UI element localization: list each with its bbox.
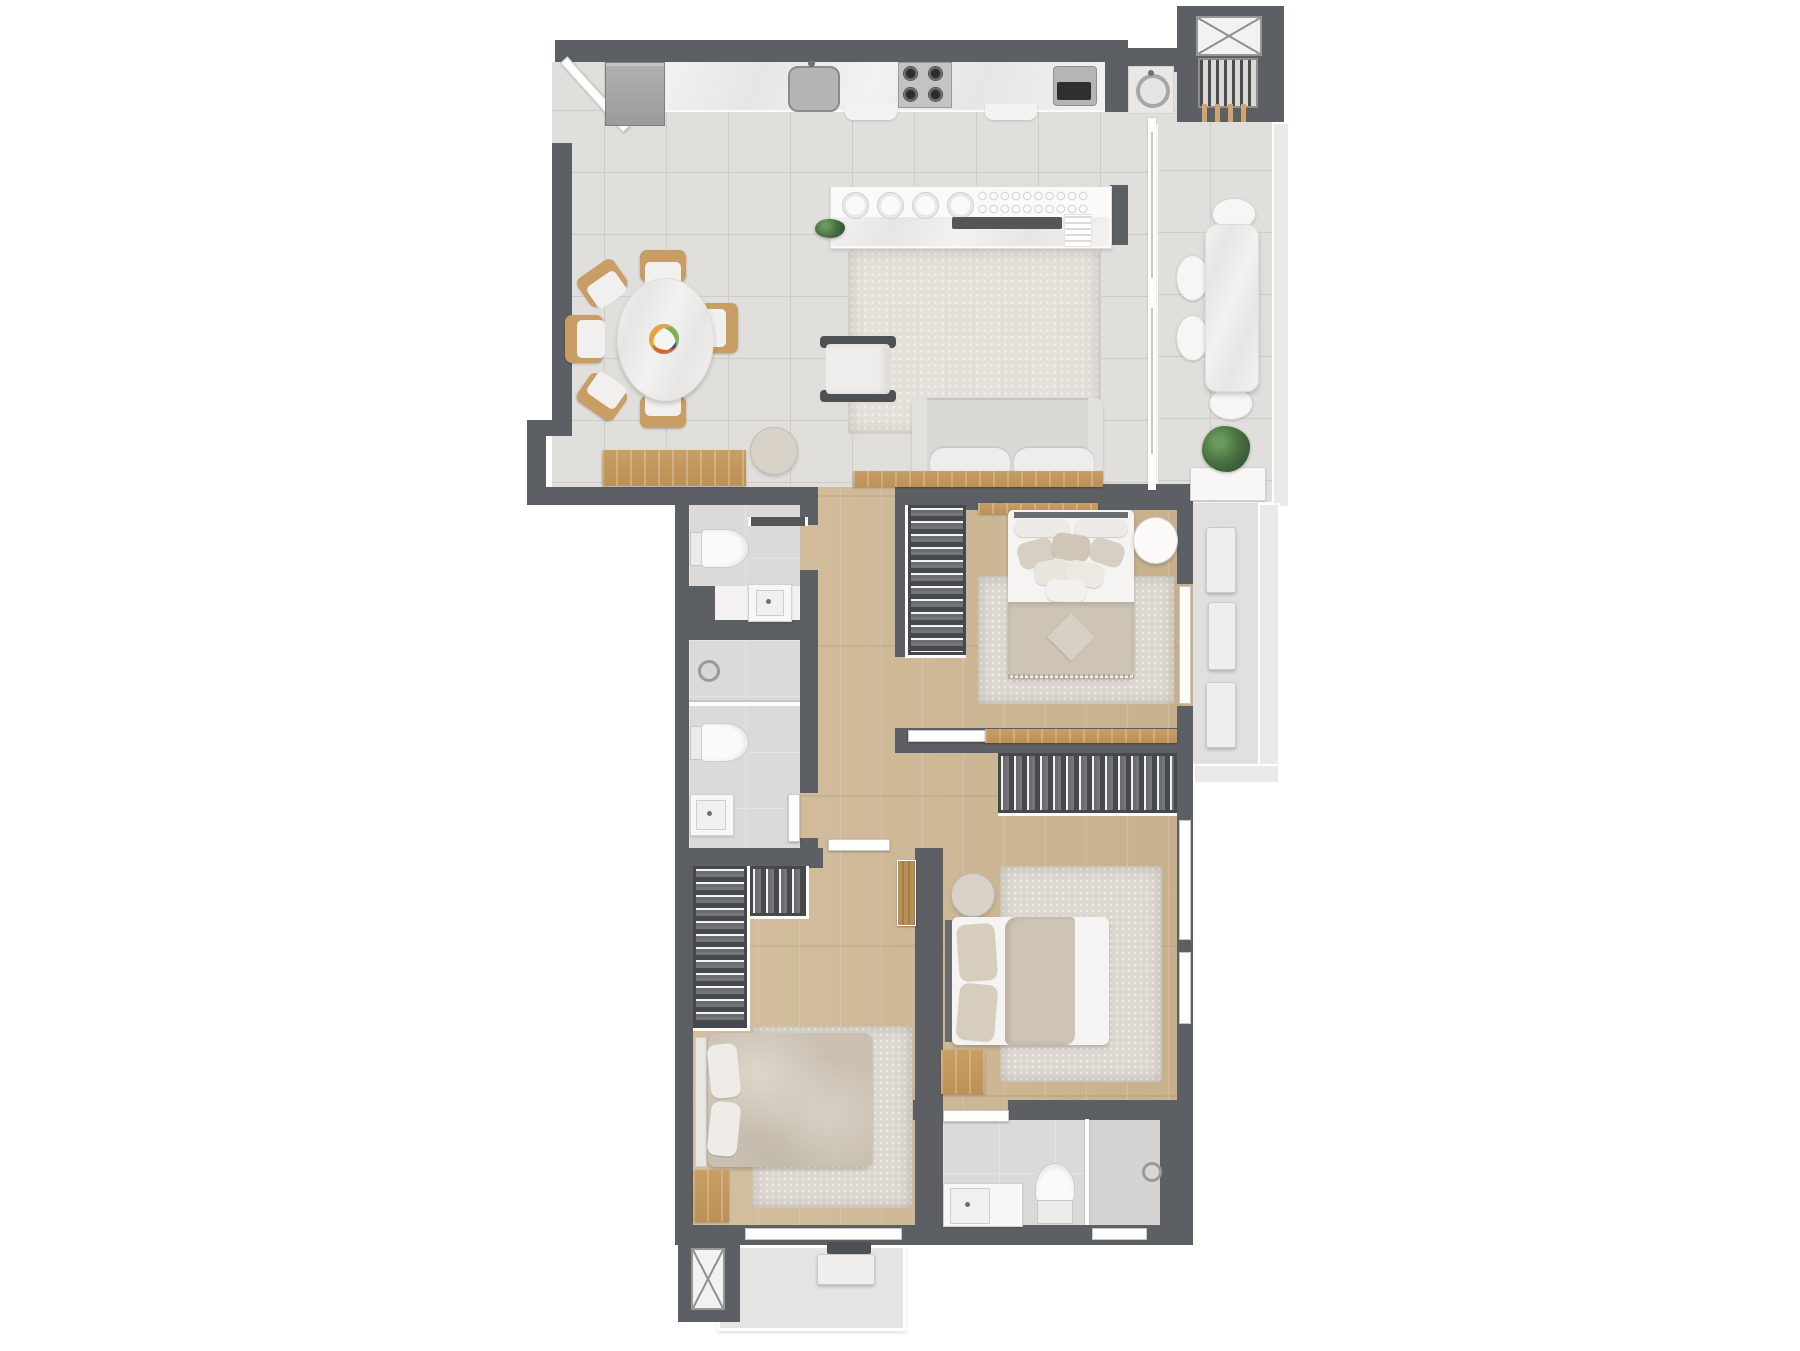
ensuite-shower-glass bbox=[1085, 1119, 1089, 1225]
built-in-appliance-panel bbox=[1057, 82, 1091, 100]
wall-island-pier bbox=[1110, 185, 1128, 245]
powder-wall-shelf bbox=[748, 517, 808, 526]
ensuite-shower-head bbox=[1142, 1162, 1162, 1182]
bedroom1-pillow-6 bbox=[1045, 579, 1086, 603]
kitchen-sink bbox=[788, 66, 840, 112]
powder-toilet-bowl bbox=[701, 529, 749, 568]
kitchen-faucet bbox=[808, 60, 815, 67]
cooktop-burner-1 bbox=[903, 66, 918, 81]
ensuite-faucet bbox=[965, 1202, 970, 1207]
wood-console-behind-sofa bbox=[853, 471, 1103, 487]
bedroom1-pillow-2 bbox=[1050, 531, 1091, 562]
wall-bath-middle-right-upper bbox=[800, 633, 818, 793]
bedroom2-pillow-bottom bbox=[956, 982, 999, 1041]
shower-glass-partition bbox=[689, 700, 800, 706]
ledge-ac-condenser bbox=[817, 1254, 875, 1285]
wall-bedroom3-top bbox=[675, 848, 823, 868]
ensuite-door-leaf bbox=[943, 1110, 1009, 1122]
wall-living-bottom bbox=[527, 487, 817, 505]
technical-balcony-parapet bbox=[1258, 503, 1280, 784]
refrigerator bbox=[605, 62, 665, 126]
fruit-bowl bbox=[649, 324, 679, 354]
bedroom1-back-pillow-right bbox=[1074, 519, 1128, 537]
shaft-bottom-x-symbol bbox=[691, 1248, 725, 1310]
ac-condenser-1 bbox=[1206, 527, 1236, 593]
wall-bedroom1-right-upper bbox=[1177, 490, 1193, 584]
range-hood-shadow-right bbox=[985, 104, 1037, 120]
powder-faucet bbox=[766, 599, 771, 604]
plate-4 bbox=[947, 192, 974, 219]
media-tray bbox=[952, 217, 1062, 229]
ensuite-vanity-basin bbox=[950, 1188, 990, 1224]
wall-bath-middle-left bbox=[675, 640, 689, 863]
laundry-faucet bbox=[1148, 70, 1154, 76]
bedroom2-headboard-bar bbox=[945, 920, 952, 1042]
window-bedroom1-right bbox=[1179, 586, 1191, 704]
ac-condenser-3 bbox=[1206, 682, 1236, 748]
bedroom3-pillow-bottom bbox=[706, 1101, 741, 1158]
window-bedroom3-bottom bbox=[745, 1228, 902, 1240]
bath-middle-door-leaf bbox=[788, 794, 800, 842]
bottom-service-ledge bbox=[717, 1245, 906, 1331]
bath-middle-toilet-bowl bbox=[701, 723, 749, 762]
cooktop-burner-2 bbox=[928, 66, 943, 81]
wall-ensuite-bottom bbox=[915, 1225, 1193, 1245]
plate-1 bbox=[842, 192, 869, 219]
wall-kitchen-top bbox=[555, 40, 1128, 62]
window-bedroom2-right-lower bbox=[1179, 952, 1191, 1024]
drying-rack bbox=[1198, 58, 1258, 108]
bedroom1-blanket-fringe bbox=[1008, 674, 1134, 679]
window-ensuite-bottom bbox=[1092, 1228, 1147, 1240]
floor-plan-canvas bbox=[0, 0, 1800, 1351]
clothespins bbox=[1202, 104, 1252, 122]
wall-bedroom2-3-divider bbox=[915, 848, 943, 1245]
sofa-arm-left bbox=[912, 398, 927, 482]
bedroom2-round-side-table bbox=[951, 873, 995, 917]
bedroom1-desk-shelf bbox=[985, 729, 1177, 743]
dining-chair-left bbox=[565, 315, 603, 363]
bedroom1-open-closet bbox=[905, 505, 966, 658]
bedroom3-closet-horizontal bbox=[750, 866, 809, 919]
plate-3 bbox=[912, 192, 939, 219]
balcony-long-table bbox=[1205, 224, 1259, 392]
wall-bedroom3-left bbox=[675, 862, 693, 1245]
bedroom1-door-leaf bbox=[908, 730, 986, 742]
ac-condenser-2 bbox=[1208, 602, 1236, 670]
window-bedroom2-right-upper bbox=[1179, 820, 1191, 940]
napkin-stack bbox=[1064, 214, 1092, 247]
bedroom3-pillow-top bbox=[706, 1043, 741, 1100]
ensuite-toilet-tank bbox=[1037, 1200, 1073, 1224]
cooktop-burner-4 bbox=[928, 87, 943, 102]
wall-powder-bath-divider bbox=[675, 620, 818, 640]
bedroom3-nightstand bbox=[693, 1170, 729, 1222]
balcony-planter bbox=[1190, 467, 1266, 501]
bedroom2-pillow-top bbox=[956, 923, 998, 982]
wall-living-left-upper bbox=[552, 143, 572, 428]
range-hood-shadow-left bbox=[845, 104, 897, 120]
bedroom2-nightstand bbox=[941, 1050, 985, 1094]
ledge-vent bbox=[827, 1242, 871, 1254]
wood-bench bbox=[602, 450, 746, 486]
laundry-basin bbox=[1136, 74, 1170, 108]
dining-chair-left-seat bbox=[577, 320, 605, 358]
bedroom3-door-leaf bbox=[828, 839, 890, 851]
glass-rack bbox=[977, 190, 1089, 216]
bedroom2-wardrobe bbox=[998, 753, 1177, 816]
shaft-top-x-symbol bbox=[1196, 16, 1262, 56]
bedroom3-headboard bbox=[695, 1037, 707, 1167]
shower-head-middle bbox=[698, 660, 720, 682]
bedroom3-closet-vertical bbox=[693, 866, 750, 1031]
technical-balcony-bottom-cap bbox=[1193, 764, 1280, 784]
wall-bedroom2-bottom-left bbox=[913, 1100, 943, 1120]
ensuite-toilet-bowl bbox=[1035, 1163, 1075, 1205]
plate-2 bbox=[877, 192, 904, 219]
bath-middle-faucet bbox=[707, 811, 712, 816]
sliding-glass-door-rail-lower bbox=[1151, 308, 1153, 454]
living-round-side-table bbox=[750, 427, 798, 475]
bedroom1-round-side-table bbox=[1133, 517, 1178, 564]
bedroom2-door-leaf bbox=[897, 860, 916, 926]
cooktop-burner-3 bbox=[903, 87, 918, 102]
sliding-glass-door-rail-upper bbox=[1151, 132, 1153, 278]
armchair-cushion bbox=[826, 344, 890, 394]
bedroom1-headboard-bar bbox=[1014, 512, 1128, 518]
balcony-parapet bbox=[1272, 122, 1290, 508]
bedroom2-beige-throw bbox=[1005, 917, 1075, 1045]
wall-living-left-jog bbox=[527, 420, 572, 436]
